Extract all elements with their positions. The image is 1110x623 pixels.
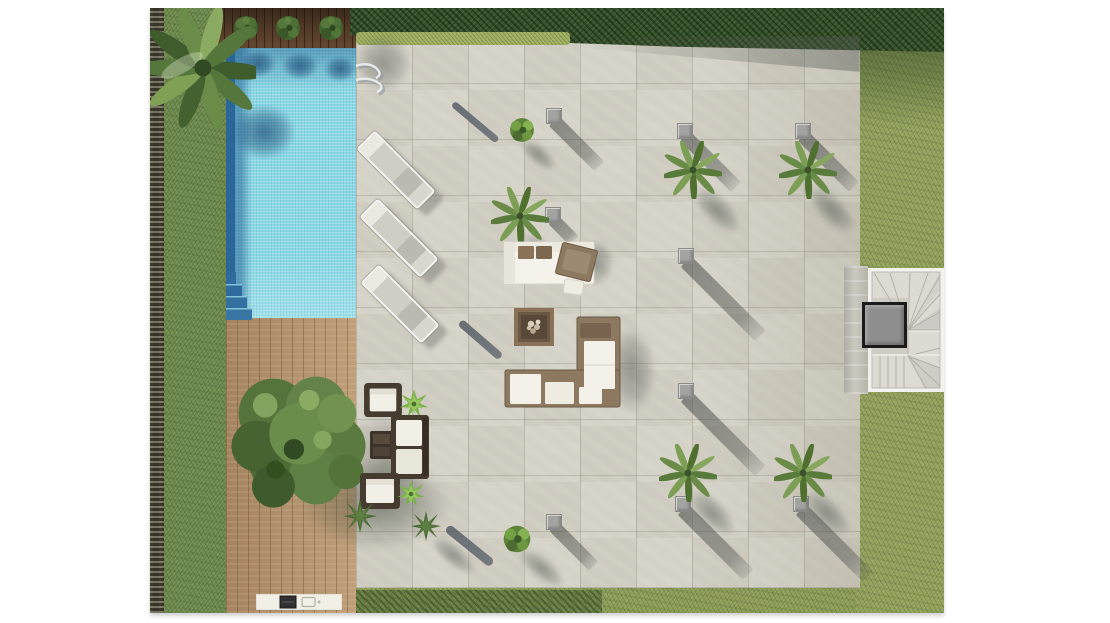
green-bush-icon [498,520,536,558]
pool-ladder [348,58,392,98]
bush-icon [316,13,346,43]
patio-palm-tree [664,141,722,199]
palm-icon [779,141,837,199]
deck-plant [396,477,426,511]
small-sofa-icon [390,414,430,480]
agave-plant [410,510,442,542]
wicker-sofa [390,414,430,480]
outdoor-kitchen-grill [256,594,342,610]
patio-palm-tree [774,444,832,502]
fire-pit-table [514,308,554,346]
light-cube [677,123,693,139]
outdoor-sofa-set-upper [498,236,628,306]
agave-plant [342,498,378,534]
patio-palm-tree [659,444,717,502]
grill-counter-icon [256,594,342,610]
light-cube [795,123,811,139]
bush-shadow-on-pool [282,52,318,80]
corner-palm-tree [150,8,256,128]
green-bush-icon [505,112,539,148]
palm-icon [774,444,832,502]
palm-icon [659,444,717,502]
spiky-plant-icon [396,477,426,511]
patio-bush [505,112,539,148]
site-plan-page [0,0,1110,623]
light-cube [546,514,562,530]
planter-bush [273,13,303,43]
agave-icon [410,510,442,542]
pool-steps [226,272,252,320]
bush-icon [273,13,303,43]
palm-icon [664,141,722,199]
sofa-set-icon [498,236,628,306]
patio-palm-tree [779,141,837,199]
stair-shaft [862,302,907,348]
pool-steps-icon [226,272,252,320]
light-cube [546,108,562,124]
light-cube [678,383,694,399]
bottom-hedge-strip [356,590,602,613]
large-palm-icon [150,8,256,128]
patio-bush [498,520,536,558]
pool-ladder-icon [348,58,392,98]
agave-icon [342,498,378,534]
fire-table-icon [514,308,554,346]
light-cube [678,248,694,264]
planter-bush [316,13,346,43]
site-plan-rendering [150,8,944,613]
